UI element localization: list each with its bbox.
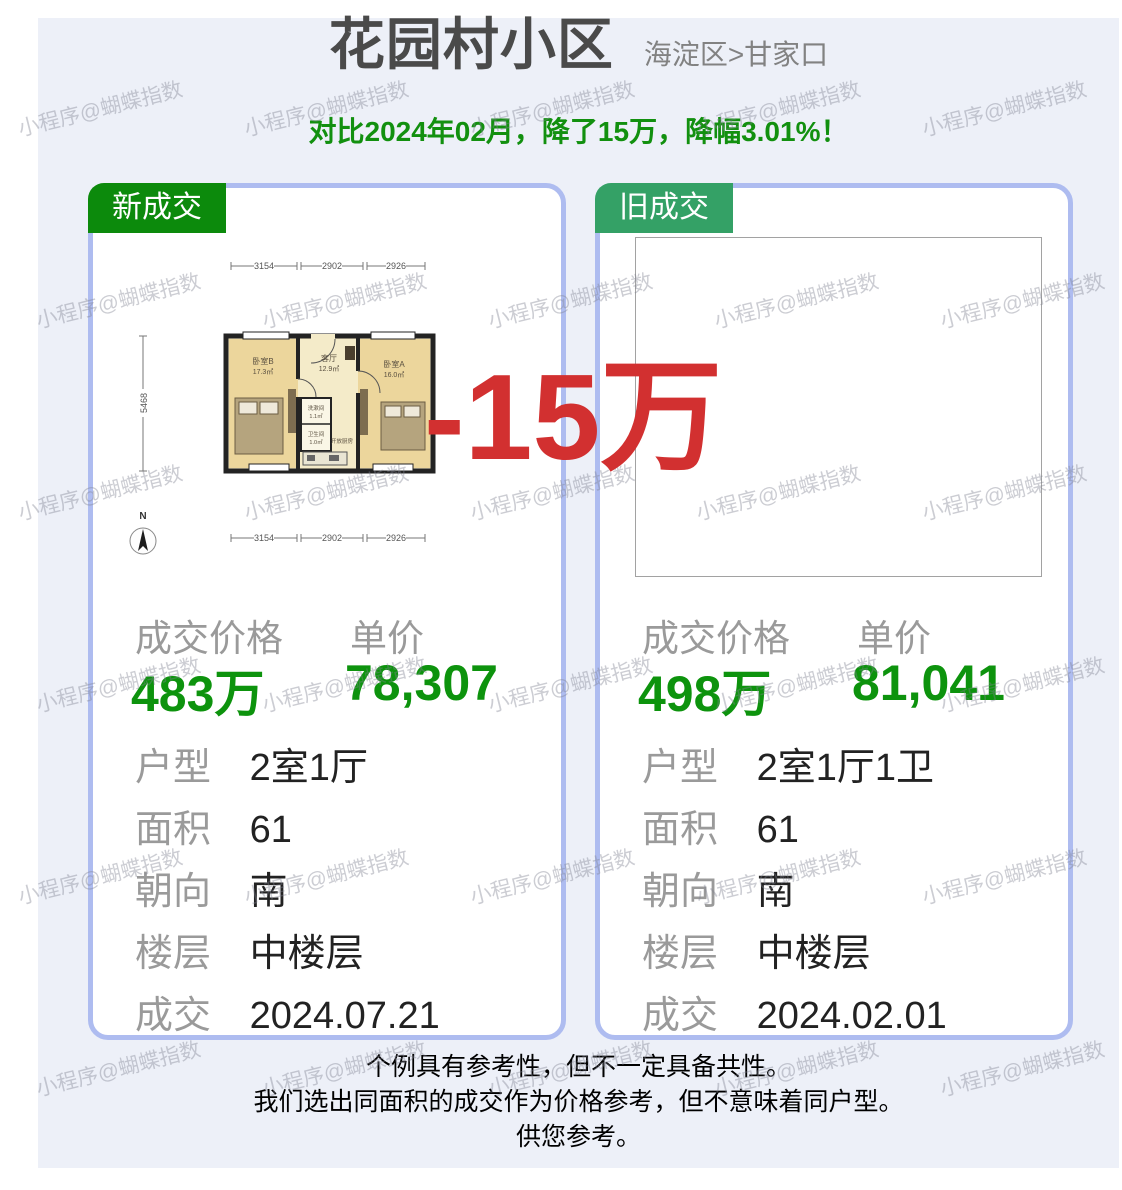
detail-row-floor: 楼层 中楼层 — [642, 922, 1042, 972]
room-bedroom-b-area: 17.3㎡ — [253, 368, 274, 376]
disclaimer-line-3: 供您参考。 — [38, 1120, 1119, 1155]
detail-value: 南 — [250, 871, 288, 913]
detail-label: 楼层 — [135, 922, 231, 977]
unit-price-value: 78,307 — [345, 654, 498, 712]
detail-label: 成交 — [135, 984, 231, 1039]
detail-row-area: 面积 61 — [135, 798, 535, 848]
detail-value: 中楼层 — [250, 933, 364, 975]
detail-value: 61 — [250, 809, 292, 851]
room-kitchen: 开放厨房 — [331, 437, 354, 445]
room-living: 客厅 — [321, 353, 337, 363]
detail-row-floor: 楼层 中楼层 — [135, 922, 535, 972]
detail-value: 2024.07.21 — [250, 995, 440, 1037]
room-toilet: 卫生间 — [308, 430, 325, 438]
dim-top-2: 2902 — [322, 261, 342, 271]
room-wash-area: 1.1㎡ — [309, 412, 323, 420]
detail-row-area: 面积 61 — [642, 798, 1042, 848]
detail-value: 中楼层 — [757, 933, 871, 975]
price-drop-banner: 对比2024年02月，降了15万，降幅3.01%！ — [38, 110, 1119, 150]
detail-label: 面积 — [135, 798, 231, 853]
detail-row-date: 成交 2024.02.01 — [642, 984, 1042, 1034]
detail-row-orientation: 朝向 南 — [135, 860, 535, 910]
floorplan-image: 3154 2902 2926 5468 — [123, 251, 459, 571]
detail-label: 成交 — [642, 984, 738, 1039]
breadcrumb: 海淀区>甘家口 — [644, 33, 828, 73]
header: 花园村小区 海淀区>甘家口 — [38, 8, 1119, 82]
share-card-page: 花园村小区 海淀区>甘家口 对比2024年02月，降了15万，降幅3.01%！ … — [0, 0, 1122, 1190]
detail-label: 户型 — [135, 736, 231, 791]
room-wash: 洗漱间 — [308, 404, 325, 412]
detail-label: 楼层 — [642, 922, 738, 977]
detail-row-layout: 户型 2室1厅 — [135, 736, 535, 786]
room-bedroom-b: 卧室B — [252, 356, 273, 366]
page-title: 花园村小区 — [329, 8, 614, 82]
price-drop-amount: -15万 — [424, 350, 722, 484]
detail-value: 南 — [757, 871, 795, 913]
dim-top-1: 3154 — [254, 261, 274, 271]
old-deal-badge: 旧成交 — [595, 183, 733, 233]
room-living-area: 12.9㎡ — [319, 365, 340, 373]
deal-price-value: 483万 — [131, 654, 264, 726]
compass-icon: N — [130, 511, 156, 554]
disclaimer-line-2: 我们选出同面积的成交作为价格参考，但不意味着同户型。 — [38, 1085, 1119, 1120]
detail-label: 面积 — [642, 798, 738, 853]
detail-row-layout: 户型 2室1厅1卫 — [642, 736, 1042, 786]
svg-text:N: N — [139, 511, 146, 522]
detail-row-date: 成交 2024.07.21 — [135, 984, 535, 1034]
disclaimer-line-1: 个例具有参考性，但不一定具备共性。 — [38, 1050, 1119, 1085]
detail-label: 朝向 — [642, 860, 738, 915]
dim-top-3: 2926 — [386, 261, 406, 271]
detail-row-orientation: 朝向 南 — [642, 860, 1042, 910]
dim-bottom-3: 2926 — [386, 533, 406, 543]
detail-value: 61 — [757, 809, 799, 851]
dim-bottom-2: 2902 — [322, 533, 342, 543]
detail-label: 朝向 — [135, 860, 231, 915]
disclaimer: 个例具有参考性，但不一定具备共性。 我们选出同面积的成交作为价格参考，但不意味着… — [38, 1050, 1119, 1155]
detail-value: 2室1厅 — [250, 747, 368, 789]
detail-value: 2024.02.01 — [757, 995, 947, 1037]
new-deal-card: 新成交 3154 2902 2926 5468 — [88, 183, 566, 1040]
unit-price-value: 81,041 — [852, 654, 1005, 712]
room-bedroom-a: 卧室A — [383, 359, 405, 369]
detail-value: 2室1厅1卫 — [757, 747, 934, 789]
dim-bottom-1: 3154 — [254, 533, 274, 543]
old-deal-card: 旧成交 成交价格 单价 498万 81,041 户型 2室1厅1卫 面积 61 … — [595, 183, 1073, 1040]
detail-label: 户型 — [642, 736, 738, 791]
deal-price-value: 498万 — [638, 654, 771, 726]
dim-left: 5468 — [139, 393, 149, 413]
room-toilet-area: 1.0㎡ — [309, 438, 323, 446]
room-bedroom-a-area: 16.0㎡ — [384, 371, 405, 379]
new-deal-badge: 新成交 — [88, 183, 226, 233]
